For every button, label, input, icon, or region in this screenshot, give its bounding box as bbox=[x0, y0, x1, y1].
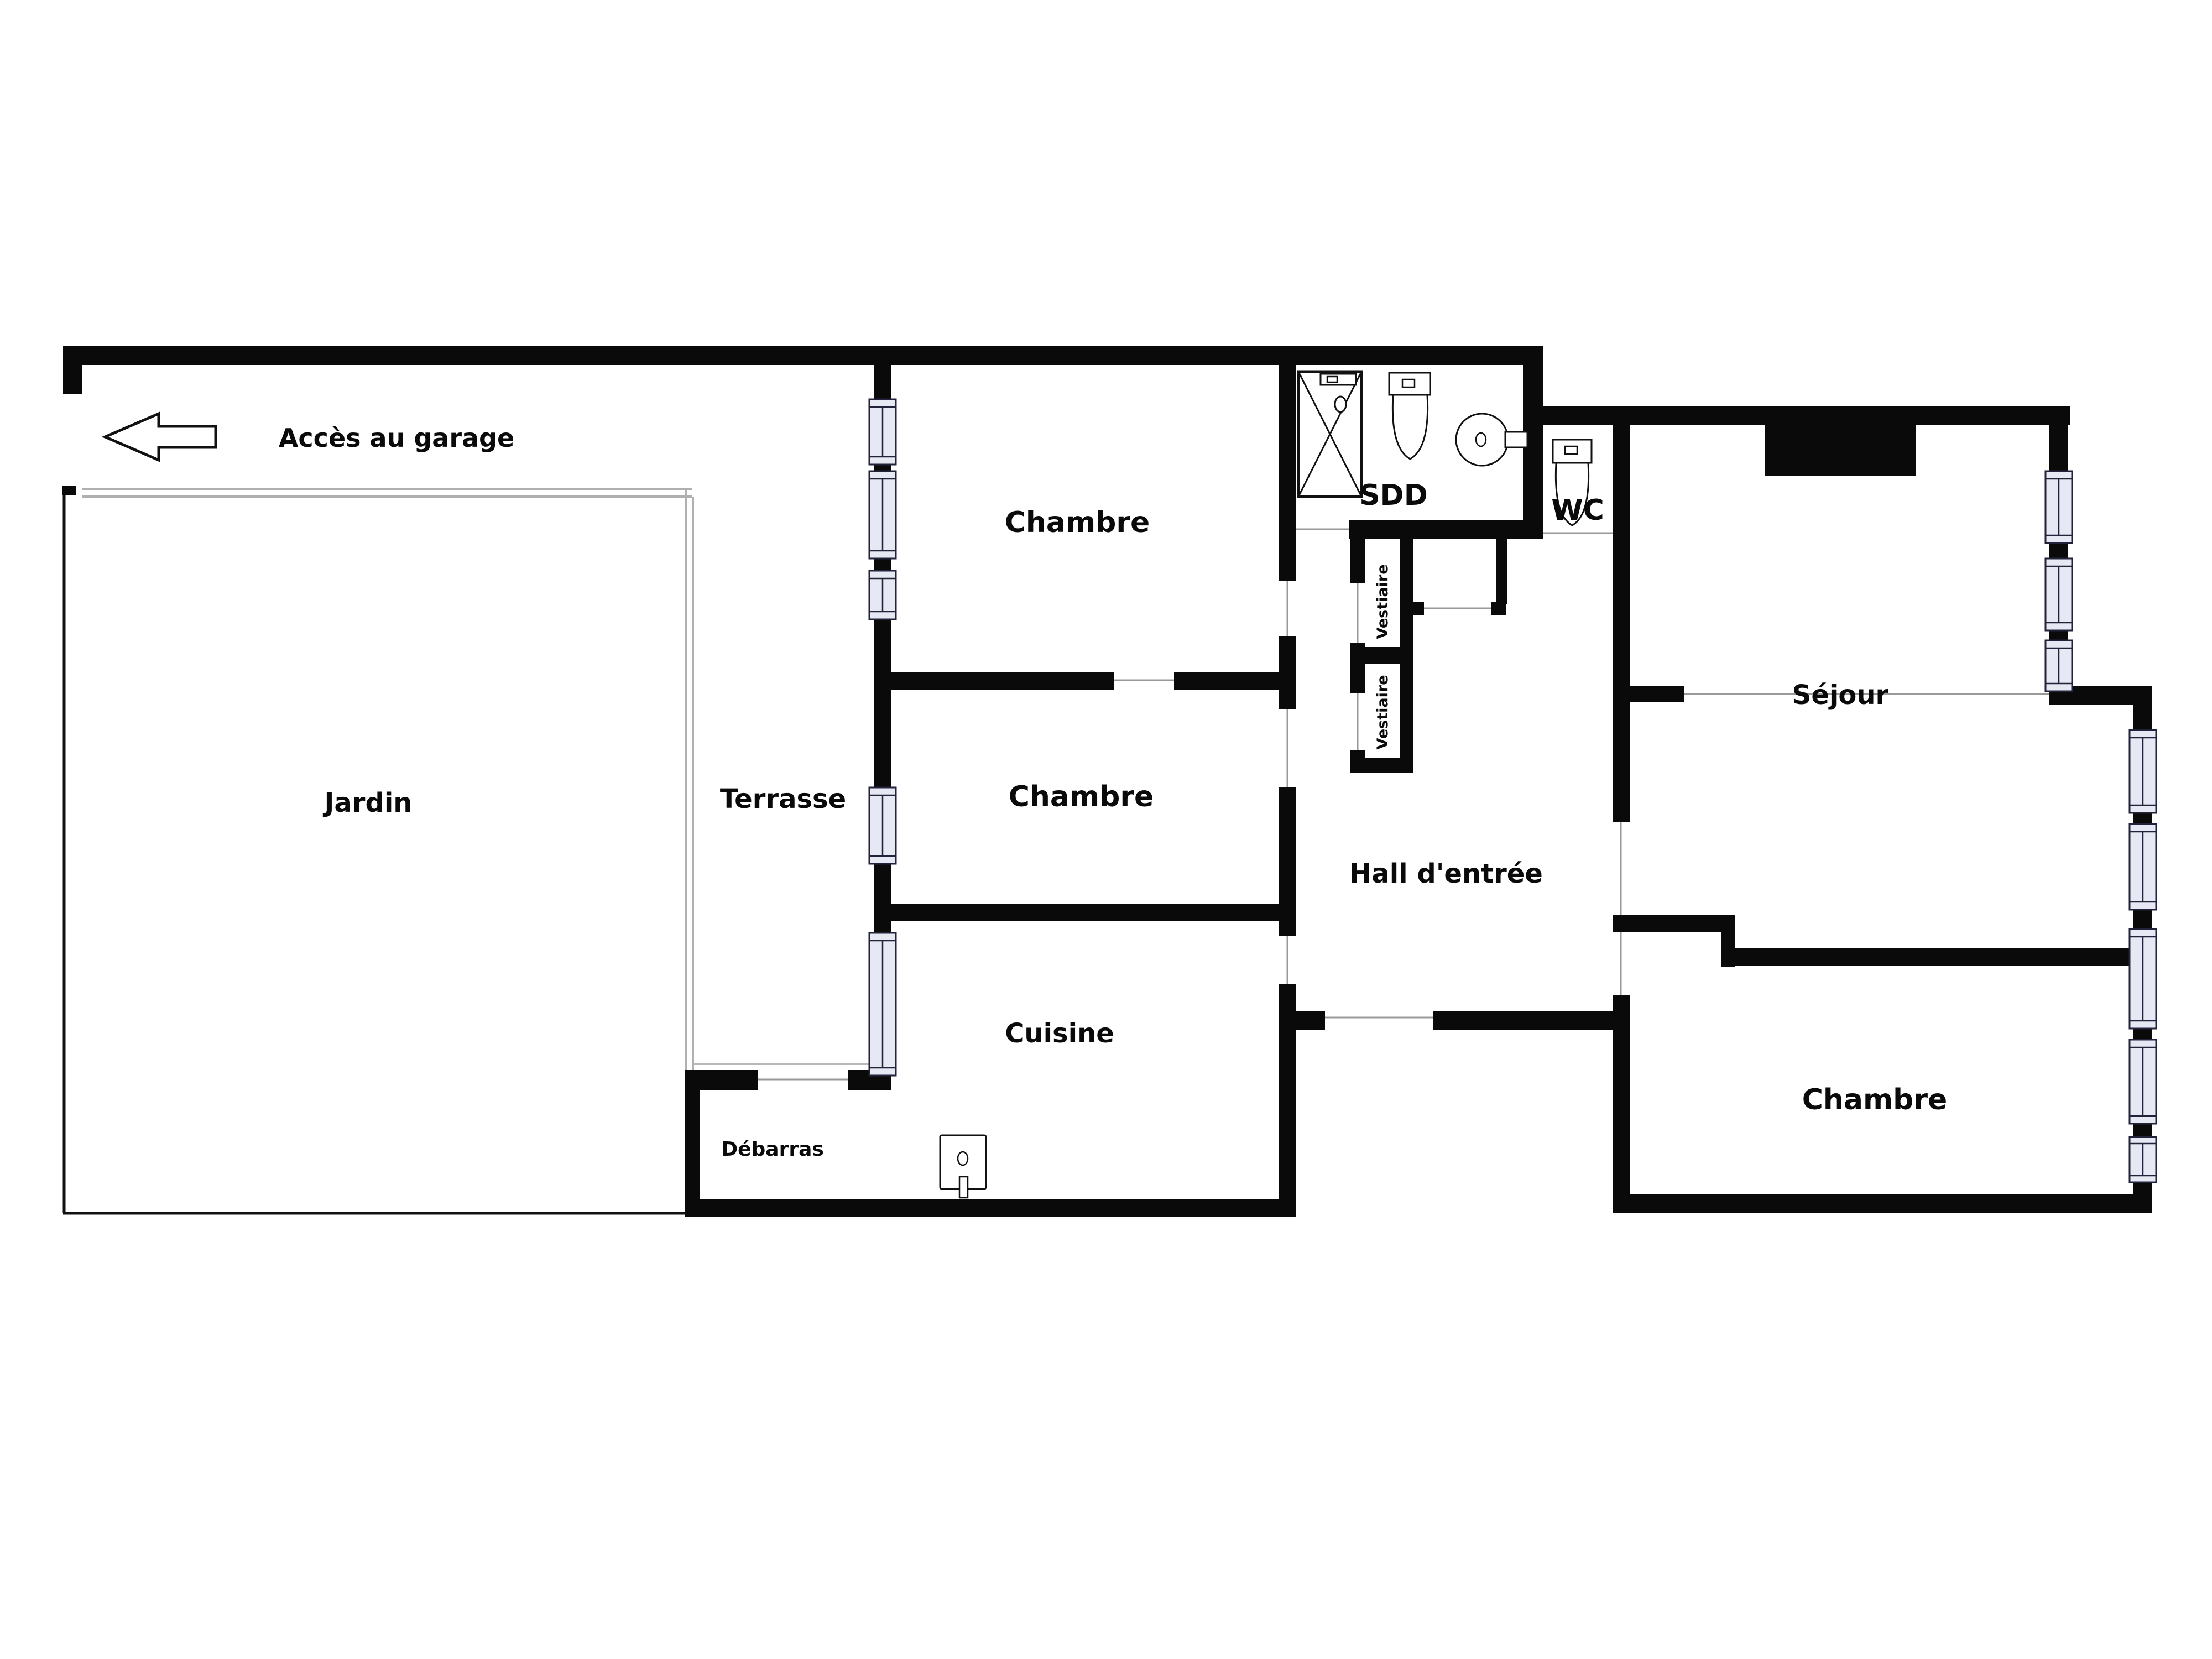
window bbox=[869, 787, 896, 864]
wall-left-stub bbox=[63, 346, 82, 394]
label-terrasse: Terrasse bbox=[720, 784, 846, 815]
wall-vestiaire-left-a bbox=[1350, 539, 1365, 583]
wall-bottom-left-section bbox=[685, 1199, 1296, 1217]
label-sdd: SDD bbox=[1359, 479, 1428, 512]
window bbox=[2130, 824, 2156, 910]
kitchen-sink-icon bbox=[940, 1135, 986, 1198]
label-debarras: Débarras bbox=[721, 1138, 824, 1161]
shower-icon bbox=[1298, 372, 1361, 497]
window bbox=[869, 399, 896, 465]
wall-sejour-chambre3-divider bbox=[1735, 948, 2133, 966]
wall-hall-chambre3 bbox=[1613, 915, 1735, 932]
garage-arrow-icon bbox=[105, 414, 216, 460]
label-wc: WC bbox=[1551, 494, 1604, 527]
wall-chambre-divider-b bbox=[1174, 672, 1296, 690]
window bbox=[2046, 640, 2072, 691]
wall-sdd-bottom bbox=[1349, 520, 1543, 539]
label-chambre-2: Chambre bbox=[1009, 780, 1154, 813]
label-vestiaire-1: Vestiaire bbox=[1374, 564, 1391, 639]
closet-jamb-left bbox=[1412, 602, 1424, 615]
wall-sejour-left-a bbox=[1613, 425, 1630, 822]
wall-chambre-divider-a bbox=[874, 672, 1114, 690]
wall-sejour-stub bbox=[1630, 686, 1684, 702]
label-sejour: Séjour bbox=[1792, 680, 1889, 711]
window bbox=[2130, 929, 2156, 1029]
floor-plan: Accès au garage Jardin Terrasse Chambre … bbox=[0, 0, 2212, 1659]
wall-cuisine-top bbox=[874, 904, 1296, 921]
wall-hall-bottom-b bbox=[1433, 1011, 1630, 1030]
window bbox=[869, 571, 896, 619]
label-chambre-3: Chambre bbox=[1802, 1083, 1948, 1117]
window bbox=[2046, 471, 2072, 543]
label-chambre-1: Chambre bbox=[1005, 506, 1150, 539]
wall-debarras-top-a bbox=[685, 1070, 758, 1090]
window bbox=[869, 933, 896, 1076]
window bbox=[2130, 1040, 2156, 1124]
chimney-block bbox=[1765, 425, 1916, 476]
wall-top-right-section bbox=[1543, 406, 2070, 425]
window bbox=[2130, 730, 2156, 813]
closet-jamb-right bbox=[1491, 602, 1506, 615]
label-acces-garage: Accès au garage bbox=[279, 423, 514, 453]
window bbox=[869, 471, 896, 559]
wall-hall-bottom-a bbox=[1282, 1011, 1325, 1030]
round-basin-icon bbox=[1456, 414, 1527, 466]
window bbox=[2130, 1137, 2156, 1182]
wall-step bbox=[1721, 915, 1735, 967]
label-hall: Hall d'entrée bbox=[1349, 858, 1543, 889]
wall-hall-west-a bbox=[1279, 346, 1296, 581]
label-jardin: Jardin bbox=[323, 787, 413, 818]
labels-layer: Accès au garage Jardin Terrasse Chambre … bbox=[279, 423, 1947, 1161]
toilet-icon bbox=[1389, 373, 1430, 459]
wall-bottom-right-section bbox=[1613, 1194, 2152, 1213]
wall-vestiaire-left-c bbox=[1350, 664, 1365, 693]
wall-hall-west-c bbox=[1279, 787, 1296, 936]
garden-post bbox=[62, 486, 76, 495]
wall-vestiaire-right bbox=[1400, 539, 1413, 773]
label-vestiaire-2: Vestiaire bbox=[1374, 675, 1391, 749]
garden-boundary bbox=[63, 489, 874, 1213]
wall-hall-west-b bbox=[1279, 636, 1296, 709]
window bbox=[2046, 559, 2072, 630]
label-cuisine: Cuisine bbox=[1005, 1018, 1114, 1049]
wall-top-left-section bbox=[64, 346, 1543, 365]
wall-hall-closet bbox=[1496, 539, 1507, 604]
